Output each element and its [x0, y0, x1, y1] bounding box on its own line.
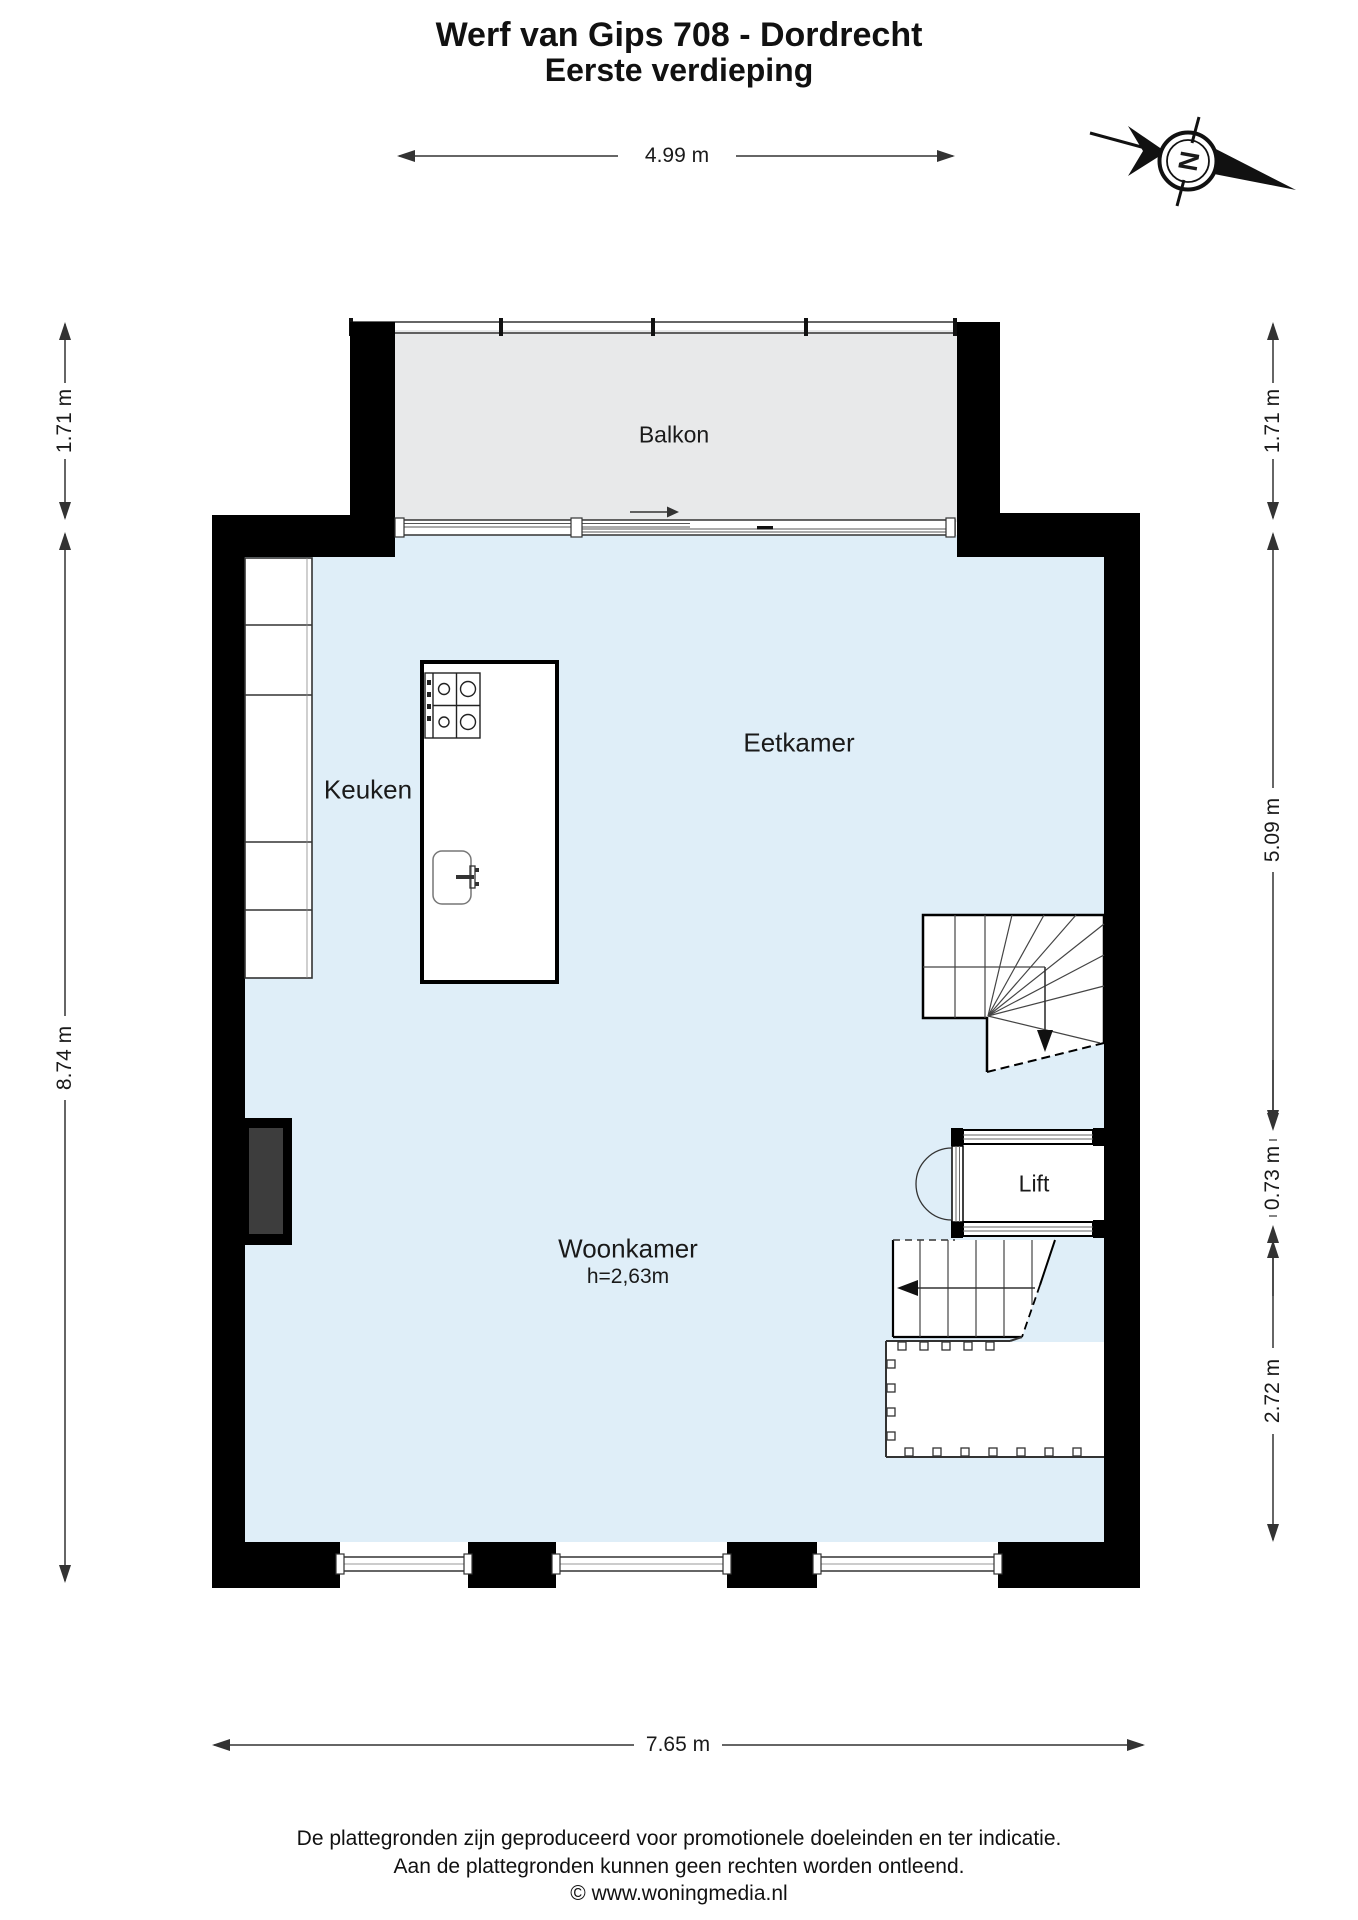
stairwell-void — [886, 1337, 1104, 1457]
room-label-woonkamer: Woonkamer — [558, 1234, 698, 1265]
footer-copyright: © www.woningmedia.nl — [0, 1882, 1358, 1906]
floorplan-page: Werf van Gips 708 - Dordrecht Eerste ver… — [0, 0, 1358, 1920]
footer-disclaimer-line2: Aan de plattegronden kunnen geen rechten… — [0, 1855, 1358, 1879]
room-label-lift: Lift — [1019, 1171, 1050, 1198]
dim-label-right-lower: 2.72 m — [1261, 1359, 1285, 1423]
dim-label-right-balcony: 1.71 m — [1261, 389, 1285, 453]
dim-label-right-upper: 5.09 m — [1261, 798, 1285, 862]
dim-label-bottom-width: 7.65 m — [646, 1733, 710, 1757]
balcony-railing — [349, 318, 957, 336]
plan-title: Werf van Gips 708 - Dordrecht — [0, 16, 1358, 55]
dim-label-left-balcony: 1.71 m — [53, 389, 77, 453]
bottom-windows — [336, 1554, 1002, 1574]
dim-label-left-room: 8.74 m — [53, 1026, 77, 1090]
dim-label-right-lift: 0.73 m — [1261, 1146, 1285, 1210]
balcony-sliding-door — [395, 518, 955, 537]
stove-icon — [425, 673, 480, 738]
kitchen-cabinets — [245, 558, 312, 978]
room-label-keuken: Keuken — [324, 775, 412, 806]
dim-label-top-width: 4.99 m — [645, 144, 709, 168]
plan-subtitle: Eerste verdieping — [0, 52, 1358, 89]
room-label-eetkamer: Eetkamer — [743, 728, 854, 759]
room-label-balkon: Balkon — [639, 422, 709, 449]
room-label-woonkamer-height: h=2,63m — [587, 1265, 669, 1289]
floorplan-drawing — [0, 0, 1358, 1920]
footer-disclaimer-line1: De plattegronden zijn geproduceerd voor … — [0, 1827, 1358, 1851]
chimney — [245, 1118, 292, 1245]
